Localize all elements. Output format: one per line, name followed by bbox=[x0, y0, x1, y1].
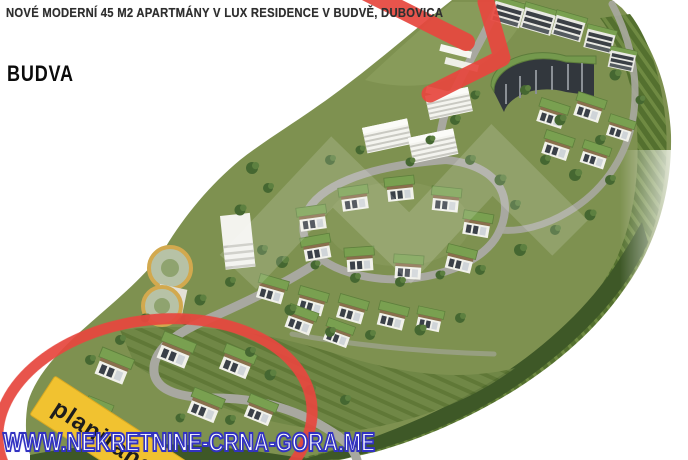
listing-image: planirana škola bbox=[0, 0, 688, 460]
villa-building bbox=[344, 246, 376, 272]
agency-watermark-url: WWW.NEKRETNINE-CRNA-GORA.ME bbox=[3, 427, 375, 458]
listing-title: NOVÉ MODERNÍ 45 M2 APARTMÁNY V LUX RESID… bbox=[6, 6, 510, 20]
location-label: BUDVA bbox=[7, 61, 74, 87]
site-rendering: planirana škola bbox=[0, 0, 688, 460]
